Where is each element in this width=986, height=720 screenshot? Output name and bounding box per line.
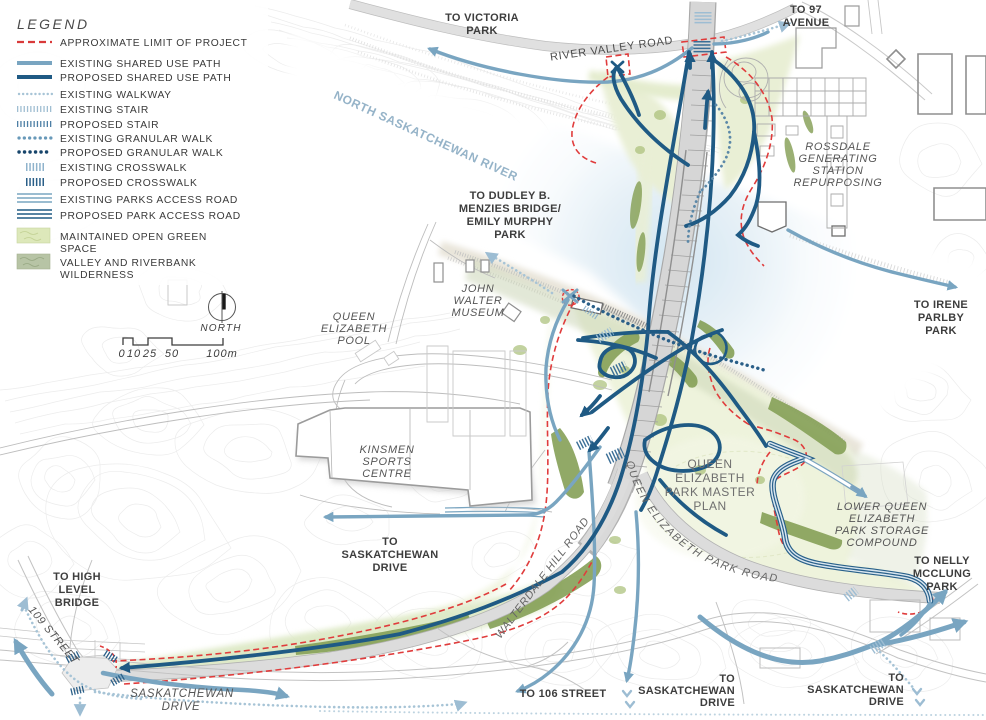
svg-text:TO: TO <box>888 672 904 684</box>
svg-text:PROPOSED PARK ACCESS ROAD: PROPOSED PARK ACCESS ROAD <box>60 211 241 222</box>
svg-text:TO IRENE: TO IRENE <box>914 299 968 311</box>
svg-text:SASKATCHEWAN: SASKATCHEWAN <box>638 685 735 697</box>
svg-text:ELIZABETH: ELIZABETH <box>849 513 915 525</box>
svg-text:EXISTING PARKS ACCESS ROAD: EXISTING PARKS ACCESS ROAD <box>60 195 238 206</box>
svg-text:WILDERNESS: WILDERNESS <box>60 270 134 281</box>
svg-text:APPROXIMATE LIMIT OF PROJECT: APPROXIMATE LIMIT OF PROJECT <box>60 38 248 49</box>
svg-text:STATION: STATION <box>813 165 864 177</box>
svg-text:VALLEY AND RIVERBANK: VALLEY AND RIVERBANK <box>60 258 196 269</box>
svg-text:SASKATCHEWAN: SASKATCHEWAN <box>130 688 234 700</box>
svg-text:TO VICTORIA: TO VICTORIA <box>445 12 519 24</box>
svg-text:MENZIES BRIDGE/: MENZIES BRIDGE/ <box>459 203 561 215</box>
svg-text:TO HIGH: TO HIGH <box>53 571 101 583</box>
svg-text:PROPOSED SHARED USE PATH: PROPOSED SHARED USE PATH <box>60 73 231 84</box>
svg-text:PARK: PARK <box>925 325 957 337</box>
svg-text:BRIDGE: BRIDGE <box>55 597 100 609</box>
svg-text:PROPOSED STAIR: PROPOSED STAIR <box>60 120 159 131</box>
svg-text:PLAN: PLAN <box>693 499 726 513</box>
svg-text:TO: TO <box>382 536 398 548</box>
svg-text:DRIVE: DRIVE <box>162 701 201 713</box>
svg-text:SASKATCHEWAN: SASKATCHEWAN <box>342 549 439 561</box>
svg-text:100m: 100m <box>206 348 238 360</box>
svg-text:50: 50 <box>165 348 179 360</box>
svg-text:MAINTAINED OPEN GREEN: MAINTAINED OPEN GREEN <box>60 232 207 243</box>
svg-text:PARK: PARK <box>466 25 498 37</box>
svg-text:DRIVE: DRIVE <box>869 696 904 708</box>
svg-text:TO DUDLEY B.: TO DUDLEY B. <box>470 190 551 202</box>
svg-text:25: 25 <box>142 348 157 360</box>
svg-text:NORTH: NORTH <box>200 323 241 334</box>
svg-text:ELIZABETH: ELIZABETH <box>675 471 745 485</box>
svg-text:PARK STORAGE: PARK STORAGE <box>835 525 929 537</box>
svg-text:MUSEUM: MUSEUM <box>451 307 504 319</box>
svg-text:109 STREET: 109 STREET <box>26 604 82 667</box>
svg-text:KINSMEN: KINSMEN <box>359 444 414 456</box>
svg-text:ROSSDALE: ROSSDALE <box>805 141 871 153</box>
svg-text:PARLBY: PARLBY <box>918 312 965 324</box>
svg-text:SPORTS: SPORTS <box>362 456 411 468</box>
svg-text:EXISTING SHARED USE PATH: EXISTING SHARED USE PATH <box>60 59 221 70</box>
svg-text:JOHN: JOHN <box>461 283 495 295</box>
svg-text:TO NELLY: TO NELLY <box>914 555 970 567</box>
svg-text:EMILY MURPHY: EMILY MURPHY <box>467 216 554 228</box>
svg-text:POOL: POOL <box>337 335 370 347</box>
svg-text:PARK: PARK <box>926 581 958 593</box>
svg-text:QUEEN: QUEEN <box>687 457 732 471</box>
svg-text:QUEEN: QUEEN <box>333 311 376 323</box>
svg-text:LEVEL: LEVEL <box>59 584 96 596</box>
svg-text:DRIVE: DRIVE <box>700 697 735 709</box>
svg-text:10: 10 <box>127 348 141 360</box>
svg-text:EXISTING WALKWAY: EXISTING WALKWAY <box>60 90 172 101</box>
svg-text:DRIVE: DRIVE <box>372 562 407 574</box>
svg-text:GENERATING: GENERATING <box>799 153 878 165</box>
svg-text:PARK MASTER: PARK MASTER <box>665 485 756 499</box>
svg-text:SASKATCHEWAN: SASKATCHEWAN <box>807 684 904 696</box>
svg-text:ELIZABETH: ELIZABETH <box>321 323 387 335</box>
svg-text:WALTER: WALTER <box>453 295 502 307</box>
svg-text:EXISTING STAIR: EXISTING STAIR <box>60 105 149 116</box>
svg-text:PROPOSED CROSSWALK: PROPOSED CROSSWALK <box>60 178 197 189</box>
svg-text:MCCLUNG: MCCLUNG <box>913 568 971 580</box>
svg-text:SPACE: SPACE <box>60 244 97 255</box>
svg-text:EXISTING CROSSWALK: EXISTING CROSSWALK <box>60 163 187 174</box>
svg-text:TO 97: TO 97 <box>790 4 822 16</box>
svg-text:AVENUE: AVENUE <box>783 17 830 29</box>
svg-text:CENTRE: CENTRE <box>362 468 411 480</box>
svg-text:TO 106 STREET: TO 106 STREET <box>520 688 607 700</box>
svg-text:LEGEND: LEGEND <box>17 16 90 32</box>
svg-text:TO: TO <box>719 673 735 685</box>
svg-text:PARK: PARK <box>494 229 526 241</box>
svg-text:LOWER QUEEN: LOWER QUEEN <box>837 501 927 513</box>
svg-text:COMPOUND: COMPOUND <box>847 537 918 549</box>
svg-text:EXISTING GRANULAR WALK: EXISTING GRANULAR WALK <box>60 134 213 145</box>
svg-text:0: 0 <box>118 348 125 360</box>
svg-text:REPURPOSING: REPURPOSING <box>794 177 883 189</box>
svg-text:PROPOSED GRANULAR WALK: PROPOSED GRANULAR WALK <box>60 148 223 159</box>
